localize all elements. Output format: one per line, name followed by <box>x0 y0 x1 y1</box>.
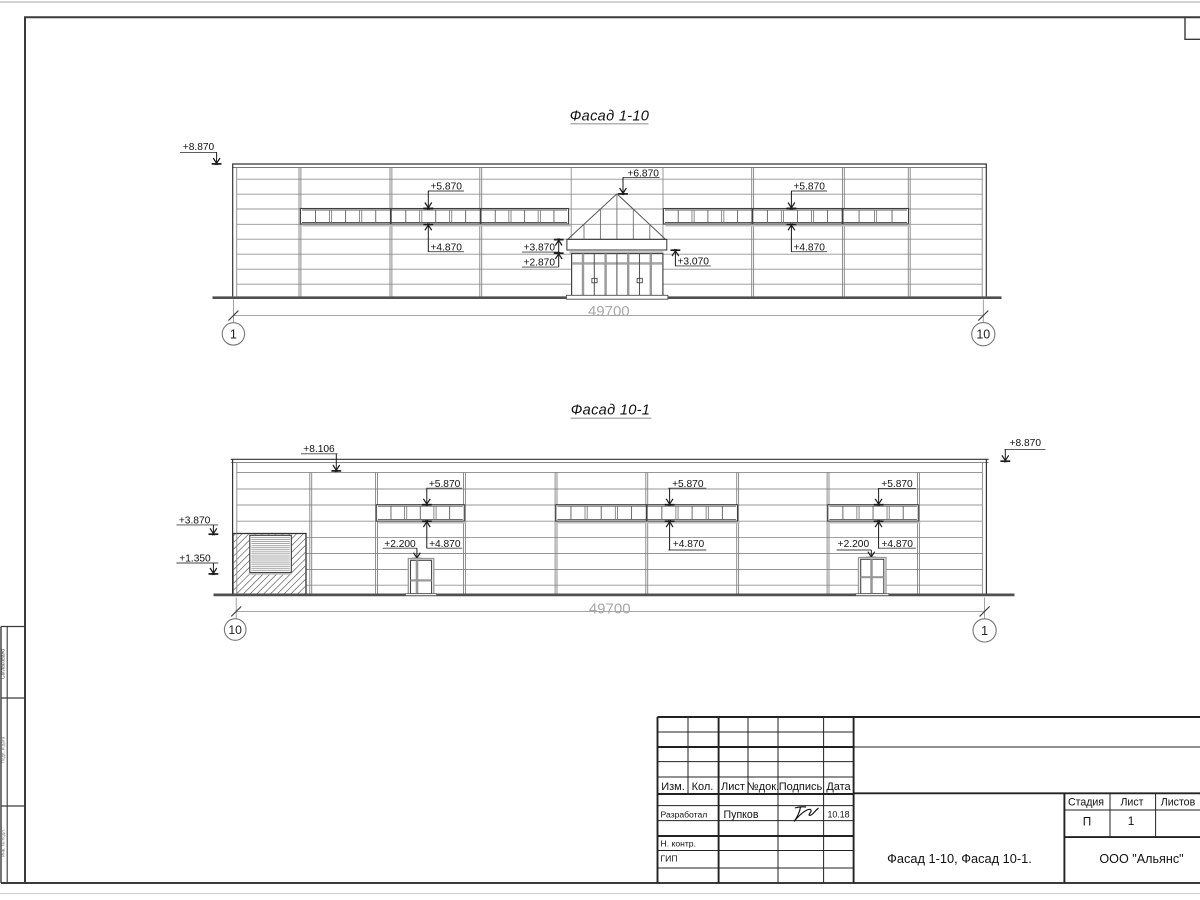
svg-text:1: 1 <box>1128 814 1135 828</box>
svg-text:49700: 49700 <box>589 601 631 618</box>
svg-text:Стадия: Стадия <box>1068 797 1104 809</box>
svg-text:Инв. № подл.: Инв. № подл. <box>1 829 6 857</box>
svg-text:10: 10 <box>228 623 242 637</box>
svg-text:Листов: Листов <box>1161 797 1196 809</box>
svg-text:№док.: №док. <box>747 781 779 793</box>
svg-text:+4.870: +4.870 <box>673 539 705 550</box>
svg-text:П: П <box>1083 815 1091 829</box>
svg-text:ГИП: ГИП <box>661 854 678 864</box>
svg-text:Изм.: Изм. <box>661 781 685 793</box>
svg-text:+8.870: +8.870 <box>1010 438 1042 449</box>
svg-text:Фасад 10-1: Фасад 10-1 <box>571 403 650 419</box>
svg-text:Дата: Дата <box>826 781 851 793</box>
svg-text:Согласовано: Согласовано <box>1 649 7 679</box>
svg-text:49700: 49700 <box>588 303 630 320</box>
svg-text:10.18: 10.18 <box>827 810 849 820</box>
svg-text:Лист: Лист <box>721 781 745 793</box>
svg-text:Подпись: Подпись <box>779 781 823 793</box>
svg-text:Фасад 1-10: Фасад 1-10 <box>570 108 649 124</box>
svg-text:Фасад 1-10, Фасад 10-1.: Фасад 1-10, Фасад 10-1. <box>887 851 1032 866</box>
svg-text:Пупков: Пупков <box>724 809 759 821</box>
svg-text:Кол.: Кол. <box>692 781 714 793</box>
svg-text:Подп. и дата: Подп. и дата <box>1 736 6 763</box>
svg-text:1: 1 <box>230 327 237 341</box>
svg-text:10: 10 <box>976 328 990 342</box>
svg-text:Лист: Лист <box>1120 797 1143 809</box>
svg-text:Разработал: Разработал <box>661 810 708 820</box>
svg-text:1: 1 <box>981 624 988 638</box>
svg-text:ООО "Альянс": ООО "Альянс" <box>1099 852 1183 866</box>
svg-text:+8.870: +8.870 <box>183 142 215 153</box>
svg-text:Н. контр.: Н. контр. <box>661 839 696 849</box>
svg-text:+2.200: +2.200 <box>838 539 870 550</box>
